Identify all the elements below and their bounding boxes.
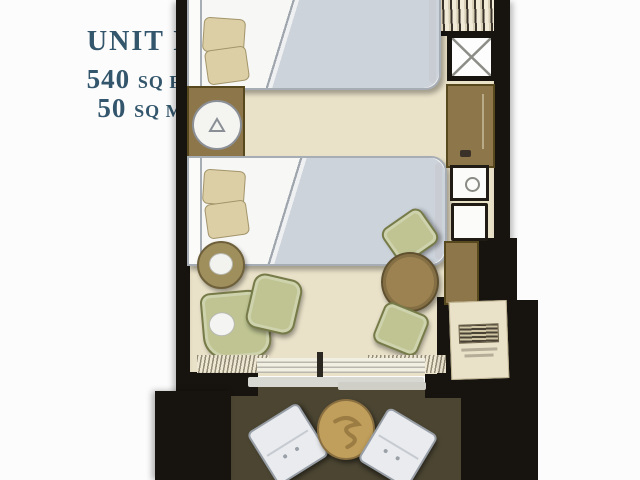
nightstand xyxy=(187,86,245,162)
area-sqft-value: 540 xyxy=(87,64,131,94)
bed-foot xyxy=(435,163,442,259)
sliding-door-handle xyxy=(317,352,323,378)
bed-foot xyxy=(429,0,436,83)
wall-right-top xyxy=(494,0,510,243)
bathroom-vanity xyxy=(446,84,495,168)
lamp-triangle-icon xyxy=(207,115,227,135)
bed-headboard xyxy=(187,0,202,90)
toilet xyxy=(451,203,488,241)
pillow-icon xyxy=(204,199,250,240)
wardrobe-with-hangers-icon xyxy=(441,0,494,31)
sliding-glass-door xyxy=(257,358,425,373)
x-cross-icon xyxy=(452,38,491,76)
wall-balcony-right xyxy=(461,380,538,480)
wall-right-lower xyxy=(505,300,538,383)
round-side-table xyxy=(197,241,245,289)
table-lamp-icon xyxy=(192,100,242,150)
faucet-icon xyxy=(460,150,471,157)
area-sqm-value: 50 xyxy=(97,93,126,123)
shower-enclosure-icon xyxy=(447,33,496,81)
ac-label-line xyxy=(461,347,497,351)
door-threshold-step xyxy=(338,382,426,390)
sink xyxy=(450,165,489,201)
vanity-edge-line xyxy=(482,94,484,149)
alcove-floor xyxy=(449,300,510,380)
bed-headboard xyxy=(187,156,202,266)
bed-1 xyxy=(187,0,441,90)
floorplan-page: UNIT E 540 SQ FT 50 SQ M xyxy=(0,0,640,480)
wall-balcony-left xyxy=(155,391,231,480)
armchair-pillow xyxy=(208,311,236,337)
sink-bowl-icon xyxy=(465,177,480,192)
side-table-top xyxy=(209,253,233,275)
ac-unit-icon xyxy=(458,323,499,343)
linen-closet xyxy=(444,241,479,305)
ac-label-line xyxy=(464,354,493,358)
pillow-icon xyxy=(204,45,250,86)
